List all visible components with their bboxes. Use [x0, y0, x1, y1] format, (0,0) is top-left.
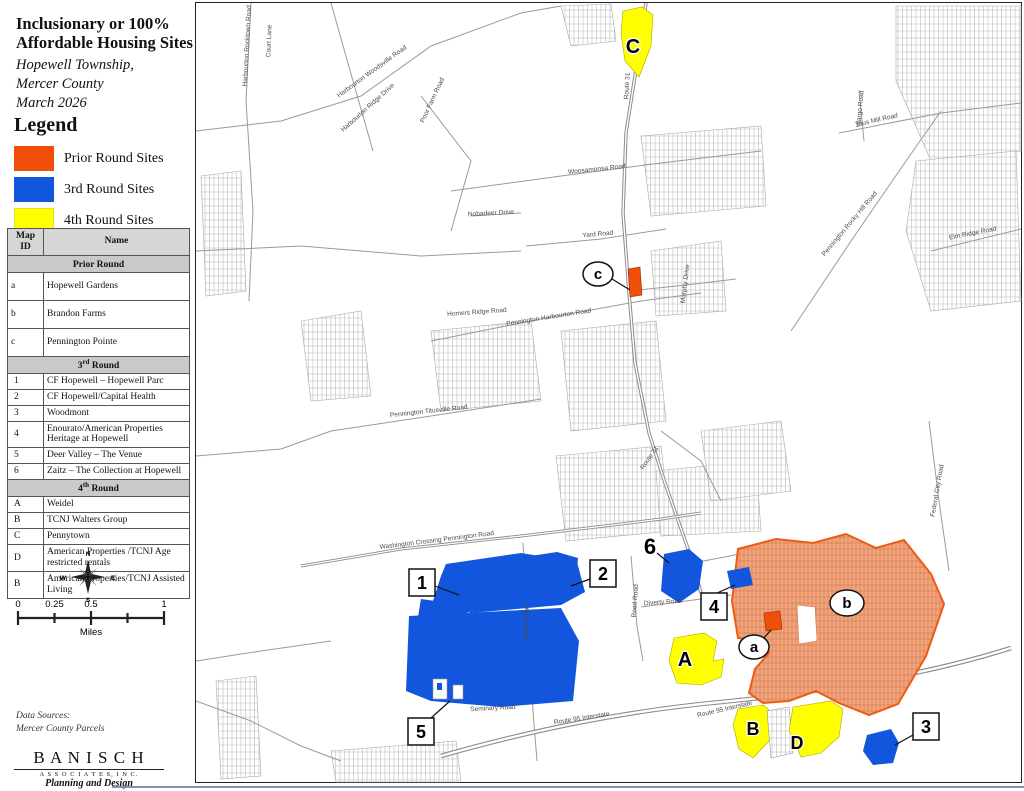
subtitle-township: Hopewell Township,	[16, 56, 134, 75]
col-name: Name	[44, 229, 190, 256]
legend-item-3rd-round: 3rd Round Sites	[14, 177, 154, 202]
map-subtitle: Hopewell Township, Mercer County March 2…	[16, 56, 134, 113]
site-4-heritage-at-hopewell	[727, 567, 753, 589]
hatched-parcel-strip	[767, 707, 793, 758]
subtitle-date: March 2026	[16, 94, 134, 113]
logo-name: B A N I S C H	[14, 748, 164, 770]
road-label: Harbourton Woodsville Road	[336, 44, 408, 99]
site-marker-C: C	[626, 36, 640, 58]
road-label: Pennington Rocky Hill Road	[821, 190, 879, 258]
table-row: 1 CF Hopewell – Hopewell Parc	[8, 373, 190, 389]
site-c-pennington-pointe	[628, 267, 642, 297]
site-marker-B: B	[747, 719, 760, 739]
compass-n: N	[86, 551, 91, 558]
table-row: B TCNJ Walters Group	[8, 513, 190, 529]
table-row: c Pennington Pointe	[8, 328, 190, 356]
section-3rd-round: 3rd Round	[8, 356, 190, 373]
site-marker-1: 1	[417, 573, 427, 593]
title-line2: Affordable Housing Sites	[16, 33, 201, 52]
site-a-hopewell-gardens	[764, 611, 782, 631]
map-title: Inclusionary or 100% Affordable Housing …	[16, 14, 201, 52]
prior-round-swatch	[14, 146, 54, 171]
bottom-divider-line	[112, 786, 1024, 788]
road-label: Federal City Road	[929, 464, 945, 518]
table-row: C Pennytown	[8, 529, 190, 545]
site-marker-c: c	[594, 266, 602, 283]
table-row: b Brandon Farms	[8, 300, 190, 328]
subtitle-county: Mercer County	[16, 75, 134, 94]
scale-025: 0.25	[45, 599, 64, 610]
map-frame: Harbourton Rocktown Road Court Lane Harb…	[195, 2, 1022, 783]
scale-1: 1	[161, 599, 166, 610]
table-row: 2 CF Hopewell/Capital Health	[8, 389, 190, 405]
sites-table: Map ID Name Prior Round a Hopewell Garde…	[7, 228, 190, 599]
section-prior-round: Prior Round	[8, 255, 190, 272]
site-marker-a: a	[750, 639, 759, 656]
title-line1: Inclusionary or 100%	[16, 14, 201, 33]
road-label: Homers Ridge Road	[447, 307, 507, 318]
site-b-brandon-farms	[732, 534, 944, 715]
site-marker-2: 2	[598, 564, 608, 584]
road-label: Nobadeer Drive	[468, 209, 515, 218]
road-label: Court Lane	[265, 24, 273, 57]
table-row: 3 Woodmont	[8, 405, 190, 421]
table-row: 6 Zaitz – The Collection at Hopewell	[8, 464, 190, 480]
township-map: Harbourton Rocktown Road Court Lane Harb…	[196, 3, 1023, 784]
road-label: Reed Road	[631, 584, 640, 618]
table-row: 4 Enourato/American Properties Heritage …	[8, 421, 190, 448]
left-panel: Inclusionary or 100% Affordable Housing …	[0, 0, 195, 791]
table-row: a Hopewell Gardens	[8, 272, 190, 300]
section-4th-round: 4th Round	[8, 480, 190, 497]
site-marker-3: 3	[921, 717, 931, 737]
table-row: 5 Deer Valley – The Venue	[8, 448, 190, 464]
table-row: A Weidel	[8, 497, 190, 513]
road-label: Route 31	[623, 72, 631, 99]
legend-label-4th: 4th Round Sites	[64, 213, 153, 229]
site-marker-6: 6	[644, 534, 656, 559]
legend-label-3rd: 3rd Round Sites	[64, 182, 154, 198]
scale-0: 0	[15, 599, 20, 610]
road-label: Poor Farm Road	[419, 77, 446, 124]
road-label: Harbourton Rocktown Road	[242, 5, 253, 87]
scale-units: Miles	[80, 627, 102, 638]
third-round-swatch	[14, 177, 54, 202]
legend-label-prior: Prior Round Sites	[64, 151, 164, 167]
scale-bar: 0 0.25 0.5 1 Miles	[12, 596, 180, 638]
compass-w: W	[60, 575, 67, 582]
site-marker-4: 4	[709, 597, 719, 617]
logo-subname: A S S O C I A T E S, I N C.	[14, 771, 164, 778]
scale-05: 0.5	[84, 599, 97, 610]
site-marker-D: D	[791, 733, 804, 753]
road-label: Diverty Road	[644, 598, 683, 608]
site-marker-b: b	[842, 595, 851, 612]
site-3-woodmont	[863, 729, 899, 765]
site-marker-5: 5	[416, 722, 426, 742]
col-map-id: Map ID	[8, 229, 44, 256]
road-label: Woosamonsa Road	[568, 163, 627, 176]
site-6-zaitz-collection	[661, 549, 703, 603]
data-sources: Data Sources: Mercer County Parcels	[16, 710, 104, 736]
table-header-row: Map ID Name	[8, 229, 190, 256]
legend-item-prior-round: Prior Round Sites	[14, 146, 164, 171]
legend-title: Legend	[14, 114, 77, 137]
site-marker-A: A	[678, 649, 692, 671]
road-label: Seminary Road	[470, 704, 516, 713]
compass-e: E	[111, 575, 116, 582]
road-label: Scotch Road	[522, 604, 530, 642]
banisch-logo: B A N I S C H A S S O C I A T E S, I N C…	[14, 748, 164, 789]
road-label: Pennington Harbourton Road	[506, 307, 592, 327]
